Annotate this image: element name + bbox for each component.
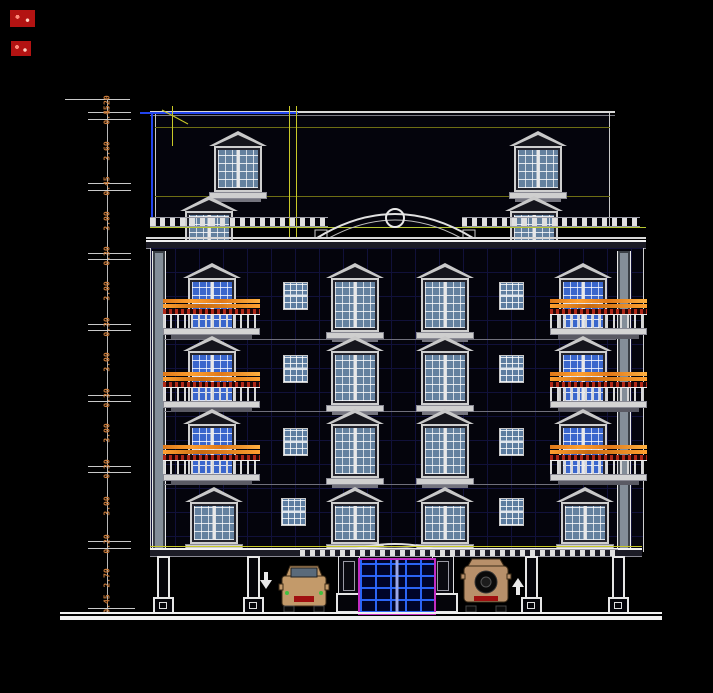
pediment-window — [209, 131, 267, 202]
square-window — [283, 428, 308, 456]
pediment-window — [416, 409, 474, 488]
square-window — [283, 282, 308, 310]
ramp-arrow-up-icon — [512, 578, 524, 587]
dimension-label: 0.30 — [103, 246, 112, 265]
dimension-label: 3.00 — [103, 281, 112, 300]
dimension-label: 0.20 — [103, 534, 112, 553]
balcony — [550, 372, 647, 412]
yellow-grid-line — [172, 106, 173, 146]
dimension-label: 3.00 — [103, 496, 112, 515]
annex-roof-shadow — [150, 115, 615, 116]
parking-column — [157, 556, 170, 600]
parking-column — [525, 556, 538, 600]
parking-column — [247, 556, 260, 600]
balcony — [163, 372, 260, 412]
balcony — [163, 445, 260, 485]
central-arched-pediment — [315, 190, 475, 240]
main-cornice-top — [146, 237, 646, 239]
pediment-window — [326, 336, 384, 415]
annex-left-edge — [155, 113, 156, 228]
pediment-window — [416, 263, 474, 342]
dimension-label: 0.45 — [103, 176, 112, 195]
pediment-window — [556, 487, 614, 551]
dimension-label: 0.30 — [103, 317, 112, 336]
ramp-arrow-up-icon — [516, 587, 520, 595]
pediment-window — [185, 487, 243, 551]
square-window — [281, 498, 306, 526]
pediment-window — [326, 263, 384, 342]
dimension-label: 0.30 — [103, 459, 112, 478]
cad-elevation-drawing: 1.200.453.600.453.000.303.000.303.000.30… — [0, 0, 713, 693]
parking-ceiling-yellow-line — [150, 546, 642, 547]
balcony — [550, 299, 647, 339]
yellow-leader-line — [160, 108, 190, 126]
pediment-window — [416, 336, 474, 415]
dimension-tick — [65, 99, 130, 100]
dimension-label: 0.45 — [103, 105, 112, 124]
ground-line — [60, 616, 662, 620]
balcony — [550, 445, 647, 485]
dimension-label: 3.00 — [103, 352, 112, 371]
entrance-pier — [338, 556, 360, 614]
roof-level-line — [155, 127, 610, 128]
dimension-label: 0.45 — [103, 594, 112, 613]
square-window — [499, 498, 524, 526]
square-window — [499, 428, 524, 456]
red-stamp — [10, 10, 35, 27]
square-window — [499, 282, 524, 310]
dimension-label: 2.70 — [103, 568, 112, 587]
car-rear-view — [458, 556, 514, 612]
square-window — [499, 355, 524, 383]
circle-medallion — [386, 209, 404, 227]
ground-line — [60, 612, 662, 614]
balcony — [163, 299, 260, 339]
dimension-label: 0.30 — [103, 388, 112, 407]
entrance-glass-door — [358, 558, 436, 615]
dimension-label: 3.60 — [103, 141, 112, 160]
pediment-window — [509, 131, 567, 202]
dimension-tick — [88, 608, 135, 609]
ramp-arrow-down-icon — [264, 572, 268, 580]
blue-grid-line — [151, 112, 153, 228]
parapet-balustrade — [462, 217, 640, 227]
red-stamp — [11, 41, 31, 56]
car-front-view — [276, 562, 332, 612]
ramp-arrow-down-icon — [260, 580, 272, 589]
dimension-label: 3.00 — [103, 211, 112, 230]
parapet-balustrade — [150, 217, 328, 227]
pediment-window — [326, 409, 384, 488]
annex-right-edge — [609, 113, 610, 228]
dimension-label: 3.00 — [103, 423, 112, 442]
square-window — [283, 355, 308, 383]
parking-column — [612, 556, 625, 600]
